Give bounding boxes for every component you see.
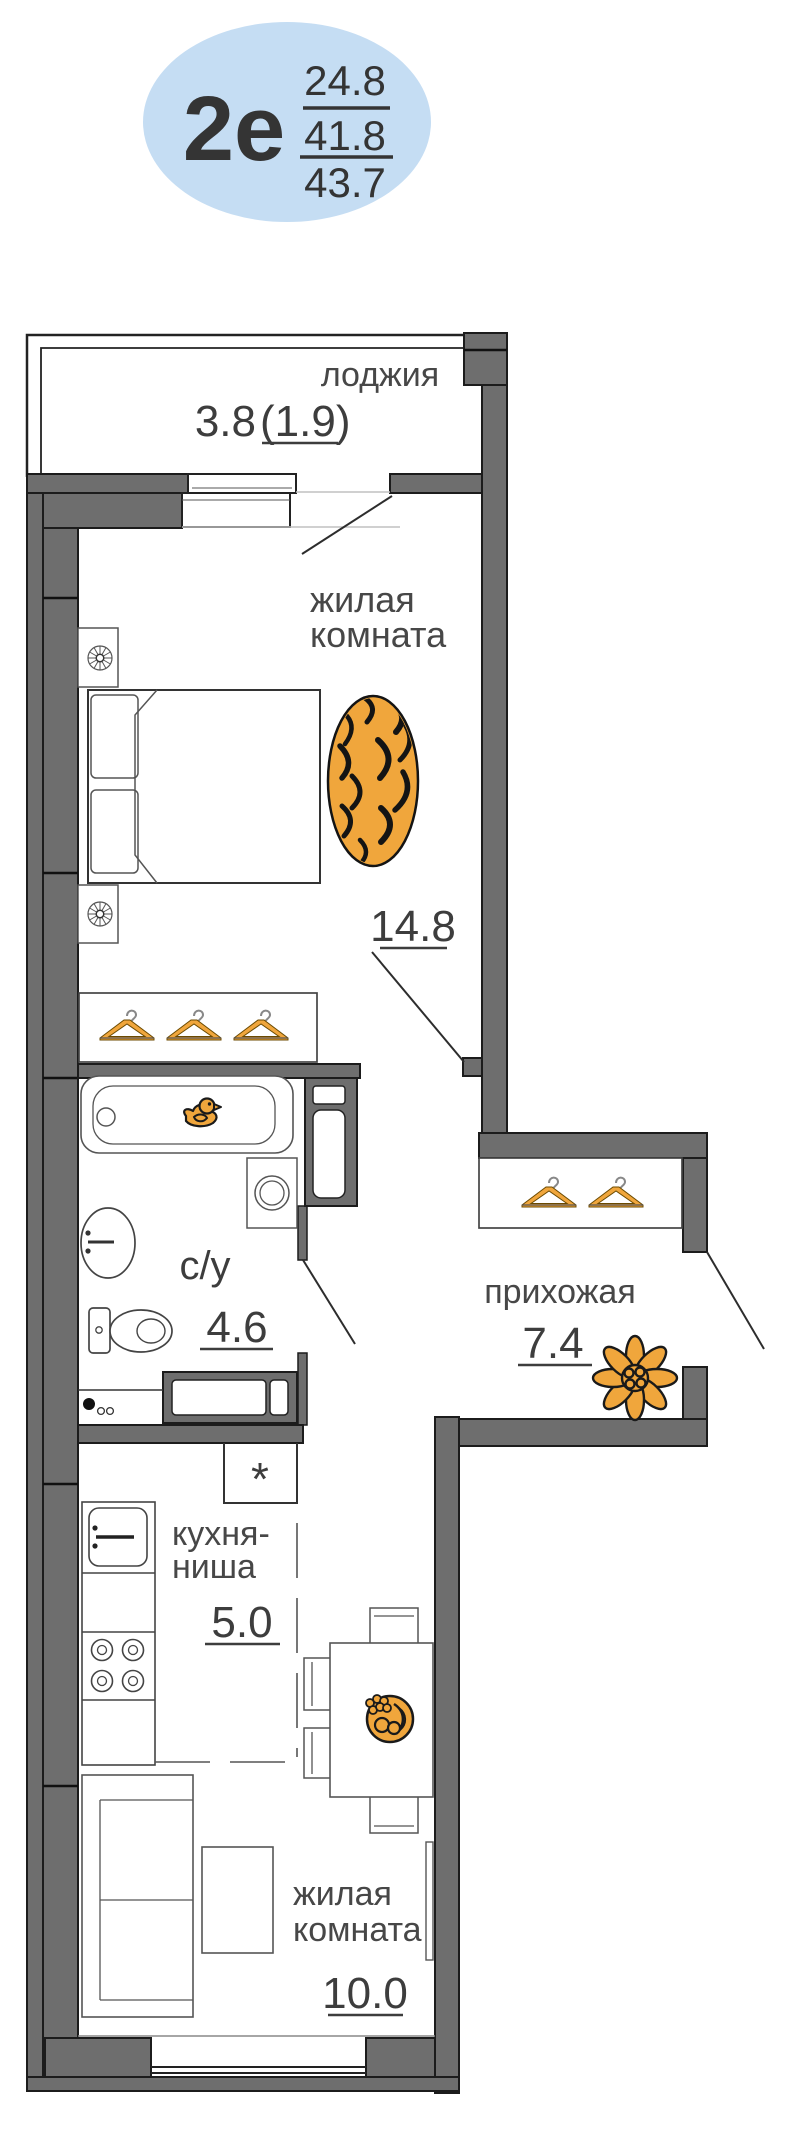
living-top-label-2: комната bbox=[310, 614, 447, 655]
loggia-area: 3.8 bbox=[195, 397, 256, 446]
badge-area-living: 24.8 bbox=[304, 57, 386, 104]
living-bottom-label-1: жилая bbox=[293, 1875, 392, 1913]
lamp-icon bbox=[88, 902, 112, 926]
wall-loggia-right-block bbox=[464, 333, 507, 385]
balcony-door-swing bbox=[302, 496, 392, 554]
balcony-window-unit bbox=[182, 474, 400, 527]
wall-hallway-top bbox=[479, 1133, 707, 1158]
nightstand-top bbox=[78, 628, 118, 687]
wall-living-right bbox=[482, 385, 507, 1133]
loggia-label: лоджия bbox=[321, 356, 439, 394]
flower-icon bbox=[593, 1336, 677, 1420]
toilet bbox=[89, 1308, 172, 1353]
wall-top-band-right bbox=[390, 474, 482, 493]
fruit-plate-icon bbox=[366, 1695, 413, 1742]
bathroom-cabinet bbox=[163, 1372, 297, 1423]
wall-bottom-band bbox=[27, 2077, 459, 2091]
bathroom-counter bbox=[78, 1390, 163, 1414]
living-room-door-swing bbox=[372, 952, 464, 1062]
wall-bottom-pier-right bbox=[366, 2038, 435, 2077]
kitchen-label-2: ниша bbox=[172, 1548, 256, 1586]
bathtub bbox=[81, 1076, 293, 1153]
tiger-rug-icon bbox=[328, 696, 418, 866]
wall-top-band-left bbox=[27, 474, 188, 493]
living-bottom-area: 10.0 bbox=[322, 1969, 408, 2018]
lamp-icon bbox=[88, 646, 112, 670]
badge-type-label: 2е bbox=[183, 78, 285, 180]
pillow bbox=[91, 695, 138, 778]
wall-right-lower bbox=[435, 1417, 459, 2093]
loggia-area-alt: (1.9) bbox=[260, 397, 350, 446]
living-top-area: 14.8 bbox=[370, 902, 456, 951]
kitchen-counter bbox=[82, 1502, 155, 1765]
wall-door-jamb bbox=[463, 1058, 482, 1076]
bathroom-area: 4.6 bbox=[206, 1303, 267, 1352]
bathroom-label: с/у bbox=[179, 1244, 230, 1288]
badge-area-total: 43.7 bbox=[304, 159, 386, 206]
kitchen-area: 5.0 bbox=[211, 1598, 272, 1647]
wall-top-band-left2 bbox=[43, 493, 182, 528]
entrance-door-swing bbox=[707, 1252, 764, 1349]
badge-area-apartment: 41.8 bbox=[304, 112, 386, 159]
bathroom-door-swing bbox=[303, 1260, 355, 1344]
wall-hallway-right-upper bbox=[683, 1158, 707, 1252]
vent-shaft bbox=[305, 1078, 357, 1206]
pillow bbox=[91, 790, 138, 873]
floor-plan-page: 2е 24.8 41.8 43.7 bbox=[0, 0, 800, 2141]
nightstand-bottom bbox=[78, 885, 118, 943]
sofa bbox=[82, 1775, 193, 2017]
wall-left-outer bbox=[27, 493, 43, 2091]
living-bottom-label-2: комната bbox=[293, 1911, 422, 1949]
wall-bottom-pier-left bbox=[45, 2038, 151, 2077]
drain bbox=[97, 1108, 115, 1126]
washing-machine bbox=[247, 1158, 297, 1228]
wardrobe-living bbox=[79, 993, 317, 1062]
wall-bathroom-right-lower bbox=[298, 1353, 307, 1425]
bathroom-sink bbox=[81, 1208, 135, 1278]
storage-symbol: * bbox=[251, 1453, 269, 1505]
coffee-table bbox=[202, 1847, 273, 1953]
wall-left-pier bbox=[43, 528, 78, 2077]
wardrobe-hallway bbox=[479, 1158, 682, 1228]
wall-bathroom-right-upper bbox=[298, 1206, 307, 1260]
hallway-area: 7.4 bbox=[522, 1319, 583, 1368]
wall-bathroom-bottom bbox=[78, 1425, 303, 1443]
radiator bbox=[426, 1842, 433, 1960]
bed bbox=[88, 690, 320, 883]
dining-set bbox=[304, 1608, 433, 1833]
wall-hallway-bottom bbox=[437, 1419, 707, 1446]
apartment-type-badge: 2е 24.8 41.8 43.7 bbox=[143, 22, 431, 222]
hallway-label: прихожая bbox=[484, 1273, 636, 1311]
kitchen-sink bbox=[89, 1508, 147, 1566]
